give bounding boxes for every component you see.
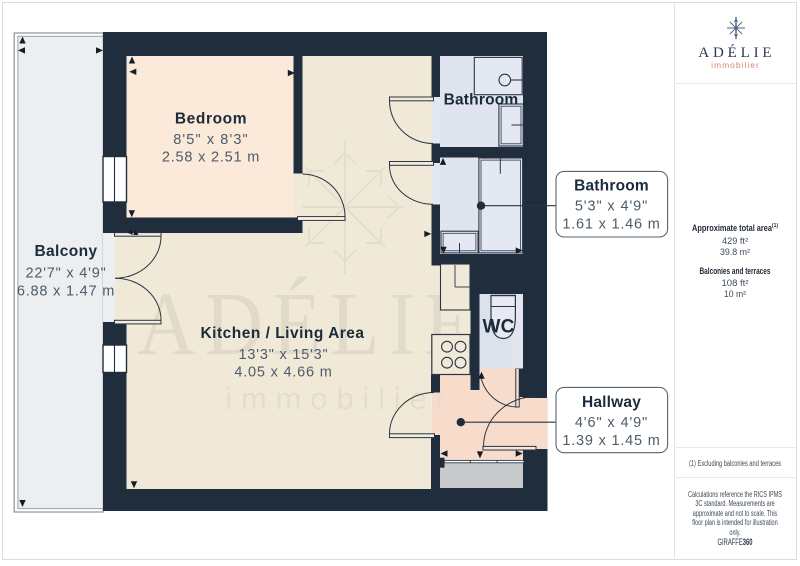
svg-text:4'6" x 4'9": 4'6" x 4'9" bbox=[575, 415, 648, 431]
svg-text:Balcony: Balcony bbox=[34, 243, 97, 260]
svg-text:1.39 x 1.45 m: 1.39 x 1.45 m bbox=[562, 433, 660, 449]
svg-text:Hallway: Hallway bbox=[582, 394, 641, 411]
svg-text:13'3" x 15'3": 13'3" x 15'3" bbox=[239, 347, 329, 363]
svg-text:22'7" x 4'9": 22'7" x 4'9" bbox=[25, 266, 106, 282]
svg-text:Kitchen / Living Area: Kitchen / Living Area bbox=[200, 325, 364, 342]
svg-text:2.58 x 2.51 m: 2.58 x 2.51 m bbox=[162, 150, 260, 166]
svg-text:WC: WC bbox=[482, 317, 514, 338]
svg-text:5'3" x 4'9": 5'3" x 4'9" bbox=[575, 199, 648, 215]
svg-text:4.05 x 4.66 m: 4.05 x 4.66 m bbox=[234, 365, 332, 381]
svg-text:6.88 x 1.47 m: 6.88 x 1.47 m bbox=[17, 284, 115, 300]
svg-text:Bedroom: Bedroom bbox=[175, 111, 247, 128]
svg-text:1.61 x 1.46 m: 1.61 x 1.46 m bbox=[562, 217, 660, 233]
svg-text:Bathroom: Bathroom bbox=[444, 92, 519, 109]
svg-text:Bathroom: Bathroom bbox=[574, 178, 649, 195]
svg-text:8'5" x 8'3": 8'5" x 8'3" bbox=[173, 132, 249, 148]
svg-text:immobilier: immobilier bbox=[225, 381, 454, 416]
